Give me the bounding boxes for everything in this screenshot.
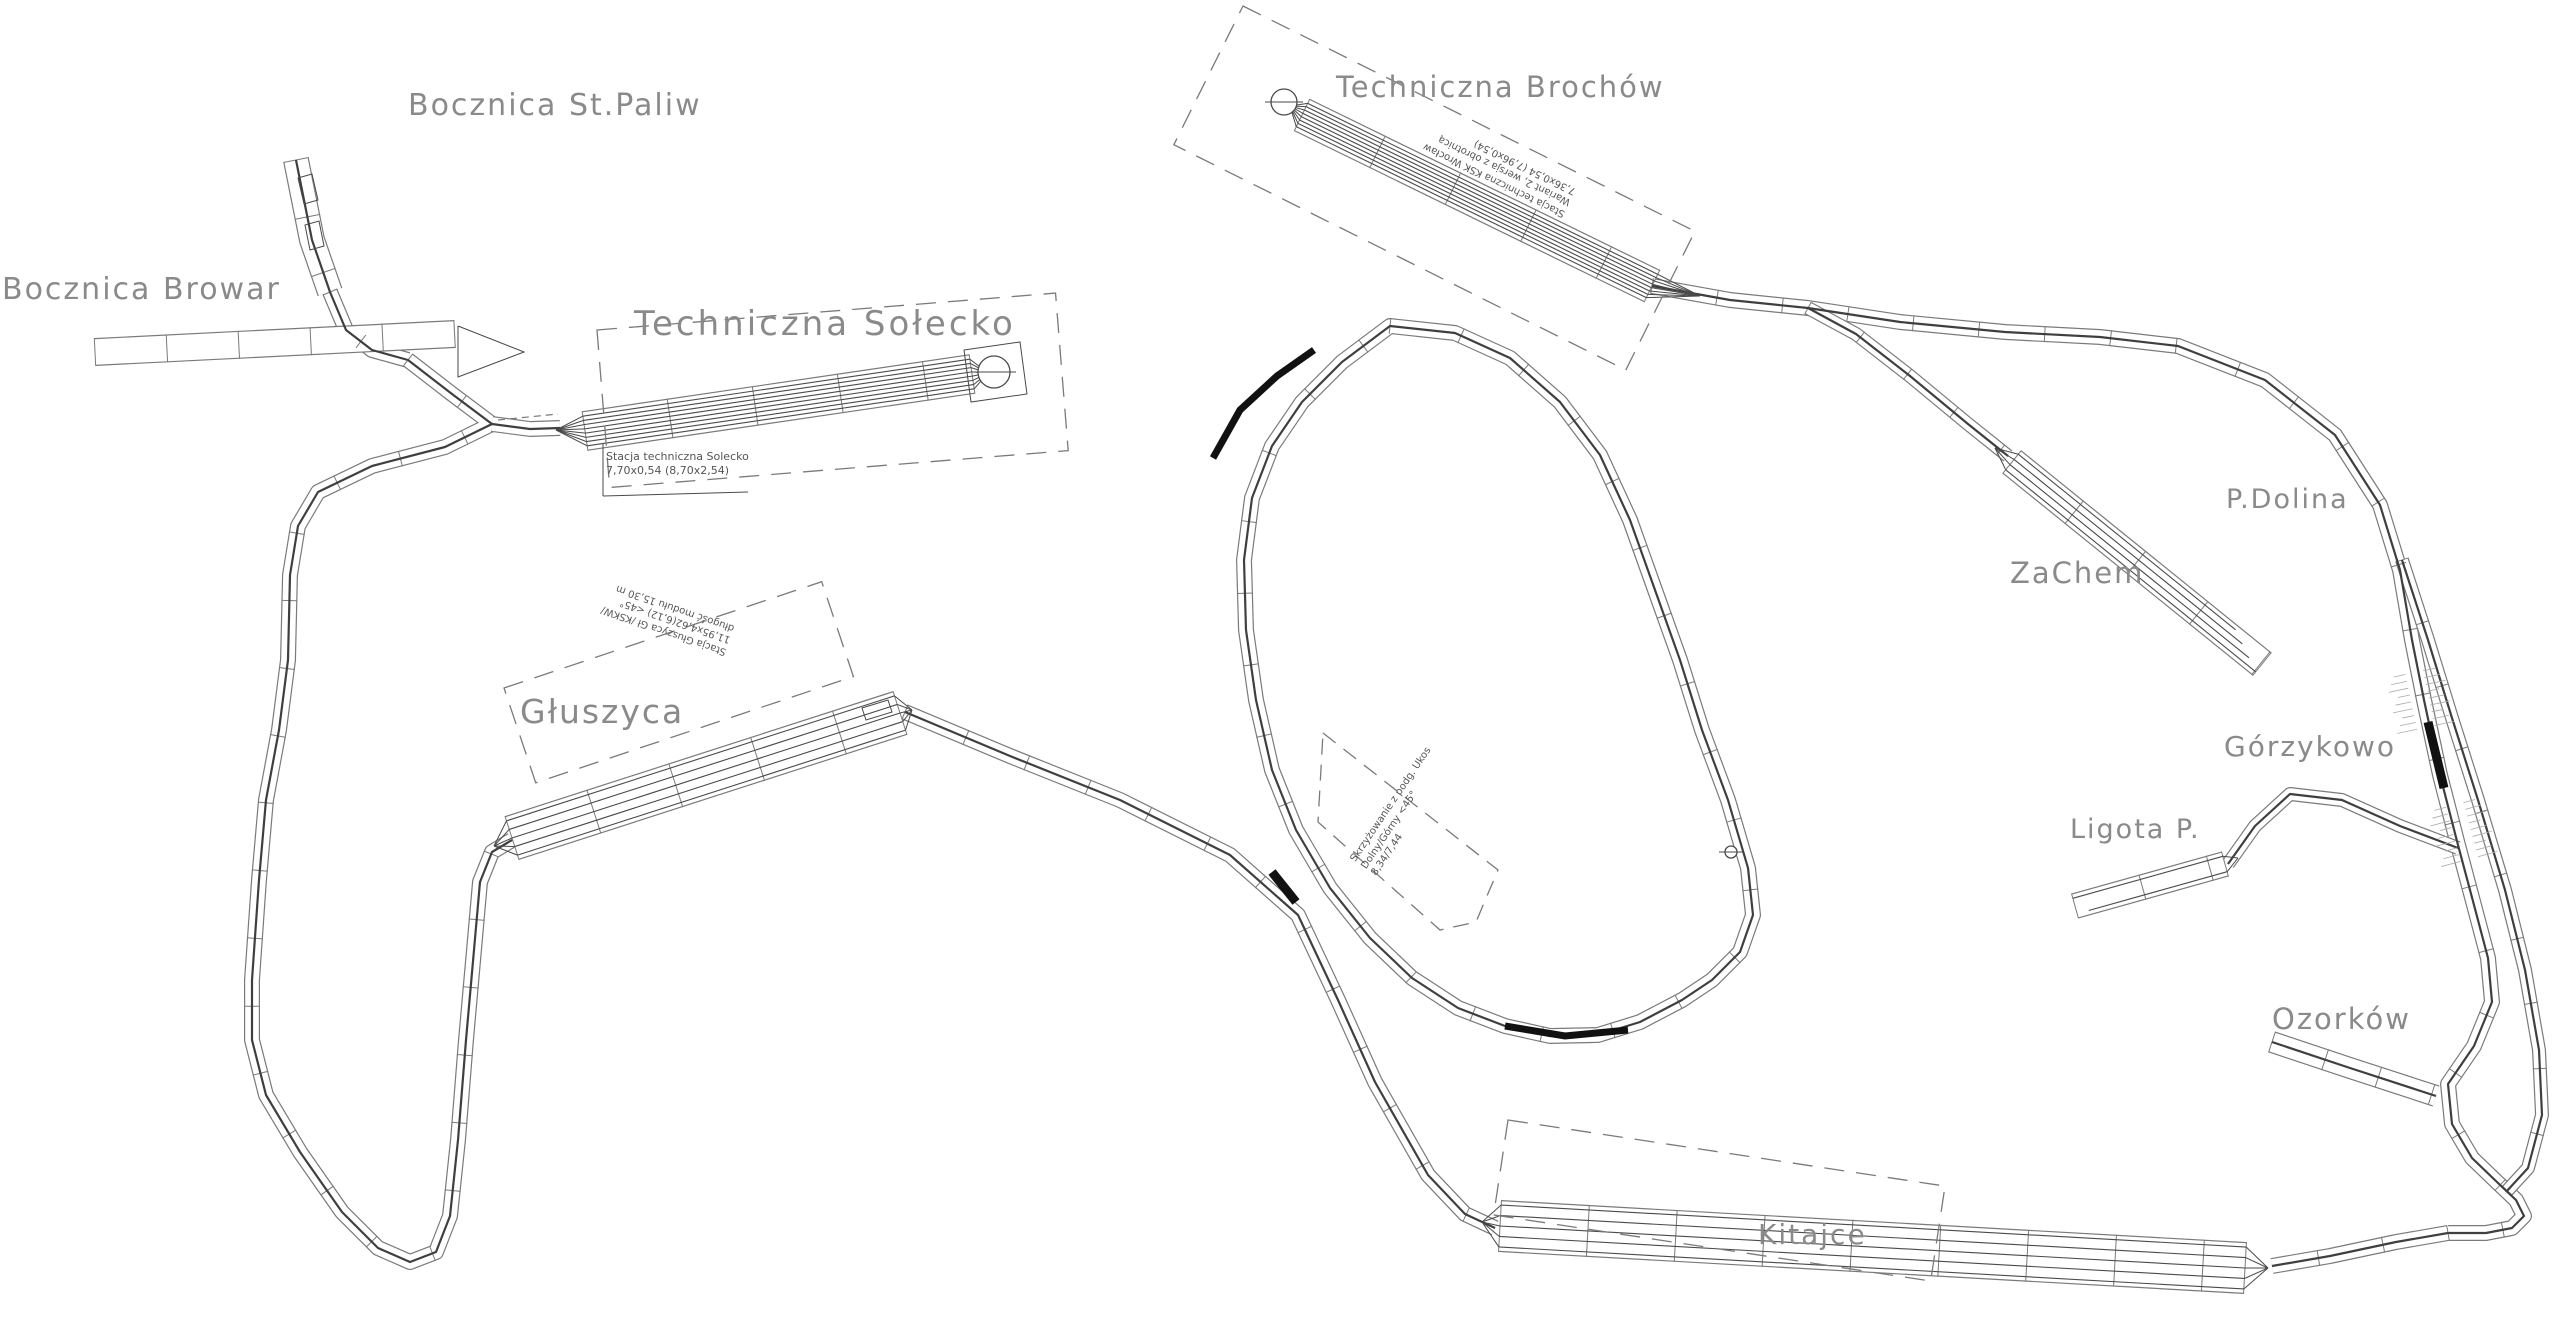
track-diagram-svg <box>0 0 2560 1334</box>
station-label-techniczna-solecko: Techniczna Sołecko <box>634 304 1016 344</box>
station-label-p-dolina: P.Dolina <box>2226 484 2349 515</box>
station-label-bocznica-st-paliw: Bocznica St.Paliw <box>408 88 702 123</box>
tunnel-marks <box>1213 350 2444 1036</box>
station-label-bocznica-browar: Bocznica Browar <box>2 272 281 307</box>
station-label-kitajce: Kitajce <box>1758 1218 1867 1251</box>
note-line: 7,70x0,54 (8,70x2,54) <box>606 464 749 478</box>
station-label-gorzykowo: Górzykowo <box>2224 730 2396 763</box>
station-label-gluszyca: Głuszyca <box>520 692 684 731</box>
station-label-techniczna-brochow: Techniczna Brochów <box>1336 70 1665 104</box>
track-plan: Bocznica St.Paliw Bocznica Browar Techni… <box>0 0 2560 1334</box>
station-label-zachem: ZaChem <box>2010 556 2144 590</box>
note-line: Stacja techniczna Solecko <box>606 450 749 464</box>
station-label-ozorkow: Ozorków <box>2272 1002 2411 1036</box>
station-label-ligota-p: Ligota P. <box>2070 814 2201 845</box>
station-note-solecko: Stacja techniczna Solecko 7,70x0,54 (8,7… <box>606 450 749 478</box>
